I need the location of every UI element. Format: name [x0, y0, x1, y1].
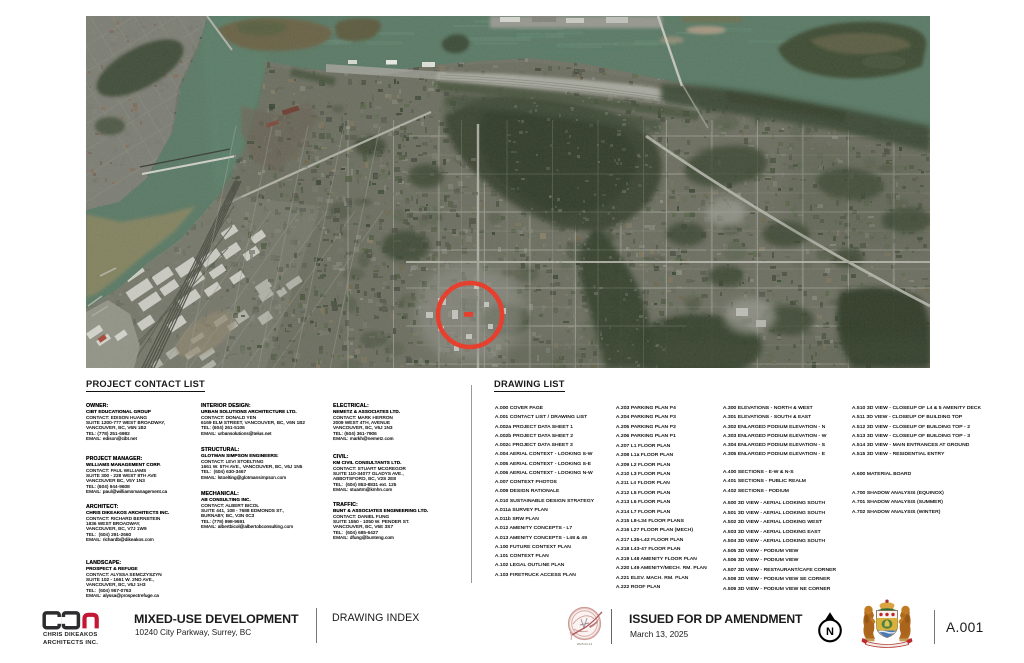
- svg-text:N: N: [826, 626, 834, 638]
- svg-text:2025-03-13: 2025-03-13: [577, 642, 593, 646]
